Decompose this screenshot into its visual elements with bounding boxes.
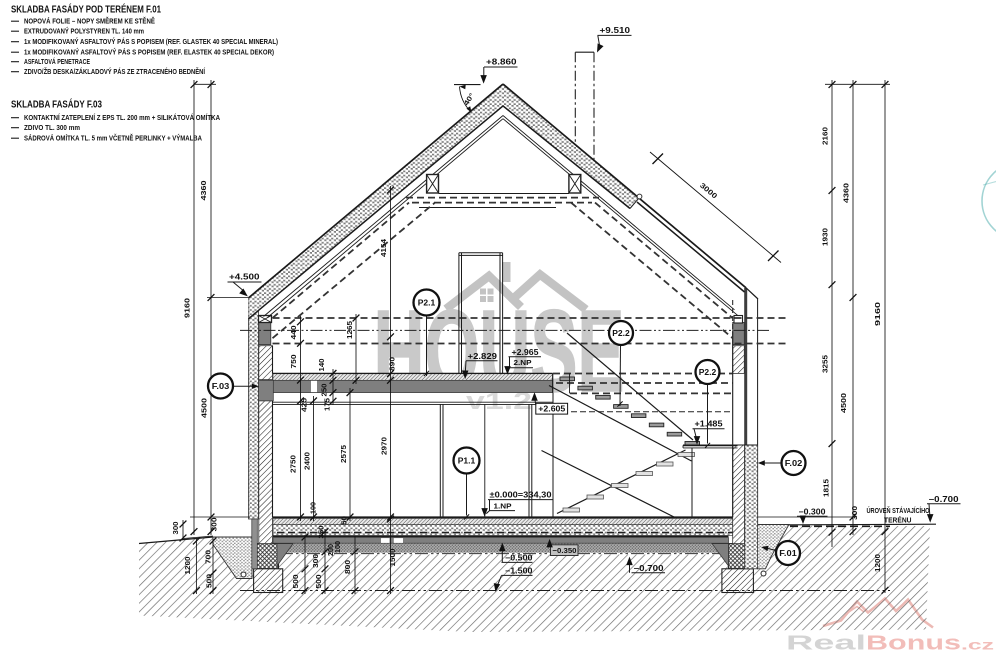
svg-text:9160: 9160	[183, 298, 192, 318]
svg-text:1500: 1500	[388, 549, 397, 567]
svg-text:4154: 4154	[379, 238, 388, 257]
svg-text:700: 700	[204, 550, 213, 564]
svg-text:+8.860: +8.860	[486, 58, 517, 67]
svg-text:−0.350: −0.350	[553, 546, 577, 555]
svg-text:1.NP: 1.NP	[494, 502, 512, 511]
svg-text:−0.700: −0.700	[634, 564, 665, 573]
svg-text:F.03: F.03	[212, 381, 230, 391]
svg-text:350: 350	[317, 526, 326, 539]
svg-text:KONTAKTNÍ ZATEPLENÍ Z EPS TL.: KONTAKTNÍ ZATEPLENÍ Z EPS TL. 200 mm + S…	[24, 113, 220, 122]
svg-text:3000: 3000	[698, 181, 719, 201]
svg-text:300: 300	[171, 522, 180, 535]
svg-text:140: 140	[317, 359, 326, 372]
svg-text:ZDIVO TL. 300 mm: ZDIVO TL. 300 mm	[24, 125, 80, 132]
svg-text:750: 750	[289, 355, 298, 369]
svg-text:EXTRUDOVANÝ POLYSTYREN TL. 140: EXTRUDOVANÝ POLYSTYREN TL. 140 mm	[24, 27, 144, 36]
svg-text:9160: 9160	[873, 302, 882, 326]
svg-text:+2.829: +2.829	[468, 352, 498, 361]
svg-text:+1.485: +1.485	[695, 420, 724, 429]
svg-text:1x MODIFIKOVANÝ ASFALTOVÝ PÁS: 1x MODIFIKOVANÝ ASFALTOVÝ PÁS S POPISEM …	[24, 48, 274, 57]
svg-text:4500: 4500	[839, 393, 848, 413]
svg-text:F.01: F.01	[779, 548, 797, 558]
svg-text:890: 890	[388, 357, 397, 371]
svg-text:800: 800	[343, 560, 352, 574]
svg-text:2575: 2575	[339, 445, 348, 463]
svg-text:−0.500: −0.500	[505, 554, 533, 563]
svg-text:2970: 2970	[380, 437, 389, 455]
svg-text:SKLADBA FASÁDY F.03: SKLADBA FASÁDY F.03	[11, 99, 102, 111]
svg-text:ÚROVEŇ STÁVAJÍCÍHO: ÚROVEŇ STÁVAJÍCÍHO	[867, 506, 930, 515]
svg-text:4500: 4500	[200, 398, 209, 418]
svg-text:P2.1: P2.1	[418, 298, 436, 308]
svg-text:SKLADBA FASÁDY POD TERÉNEM F.0: SKLADBA FASÁDY POD TERÉNEM F.01	[11, 4, 161, 16]
svg-text:440: 440	[289, 326, 298, 340]
svg-text:P2.2: P2.2	[699, 367, 717, 377]
svg-text:P1.1: P1.1	[458, 456, 476, 466]
svg-text:+4.500: +4.500	[229, 273, 260, 282]
svg-text:1200: 1200	[183, 557, 192, 575]
svg-text:425: 425	[300, 398, 309, 412]
svg-text:−1.500: −1.500	[505, 567, 533, 576]
svg-text:±0.000=334,30: ±0.000=334,30	[490, 491, 553, 500]
svg-text:175: 175	[323, 398, 332, 411]
svg-text:ZDIVO/ŽB DESKA/ZÁKLADOVÝ PÁS Z: ZDIVO/ŽB DESKA/ZÁKLADOVÝ PÁS ZE ZTRACENÉ…	[24, 67, 206, 76]
svg-text:100: 100	[309, 502, 318, 514]
svg-text:+2.605: +2.605	[538, 405, 566, 414]
svg-text:−0.300: −0.300	[799, 507, 827, 516]
svg-text:1265: 1265	[345, 321, 354, 339]
svg-text:300: 300	[850, 506, 859, 520]
svg-text:500: 500	[205, 574, 214, 588]
svg-text:300: 300	[210, 518, 219, 532]
svg-text:2750: 2750	[289, 455, 298, 473]
svg-text:4360: 4360	[199, 181, 208, 201]
svg-text:1200: 1200	[873, 554, 882, 572]
svg-text:500: 500	[291, 575, 300, 589]
svg-text:ASFALTOVÁ PENETRACE: ASFALTOVÁ PENETRACE	[24, 57, 90, 66]
svg-text:40°: 40°	[462, 92, 476, 107]
svg-text:P2.2: P2.2	[612, 328, 630, 338]
svg-text:300: 300	[311, 554, 320, 568]
svg-text:1930: 1930	[821, 228, 830, 246]
svg-text:RealBonus.cz: RealBonus.cz	[786, 632, 994, 655]
svg-text:+9.510: +9.510	[600, 26, 631, 35]
svg-text:2400: 2400	[303, 452, 312, 470]
svg-text:2.NP: 2.NP	[514, 358, 532, 367]
svg-text:1x MODIFIKOVANÝ ASFALTOVÝ PÁS: 1x MODIFIKOVANÝ ASFALTOVÝ PÁS S POPISEM …	[24, 37, 278, 46]
svg-text:−0.700: −0.700	[929, 495, 960, 504]
svg-text:3255: 3255	[821, 355, 830, 373]
svg-text:1815: 1815	[822, 479, 831, 497]
svg-text:50: 50	[340, 516, 349, 525]
svg-text:250: 250	[320, 384, 329, 397]
svg-text:TERÉNU: TERÉNU	[884, 516, 912, 525]
svg-text:+2.965: +2.965	[512, 348, 540, 357]
svg-text:100: 100	[333, 541, 342, 553]
svg-text:2160: 2160	[821, 127, 830, 145]
svg-text:NOPOVÁ FOLIE – NOPY SMĚREM KE: NOPOVÁ FOLIE – NOPY SMĚREM KE STĚNĚ	[24, 17, 155, 26]
svg-text:500: 500	[314, 575, 323, 589]
svg-text:SÁDROVÁ OMÍTKA TL. 5 mm VČETNĚ: SÁDROVÁ OMÍTKA TL. 5 mm VČETNĚ PERLINKY …	[24, 134, 202, 143]
svg-text:4360: 4360	[842, 183, 851, 203]
svg-text:F.02: F.02	[785, 458, 803, 468]
